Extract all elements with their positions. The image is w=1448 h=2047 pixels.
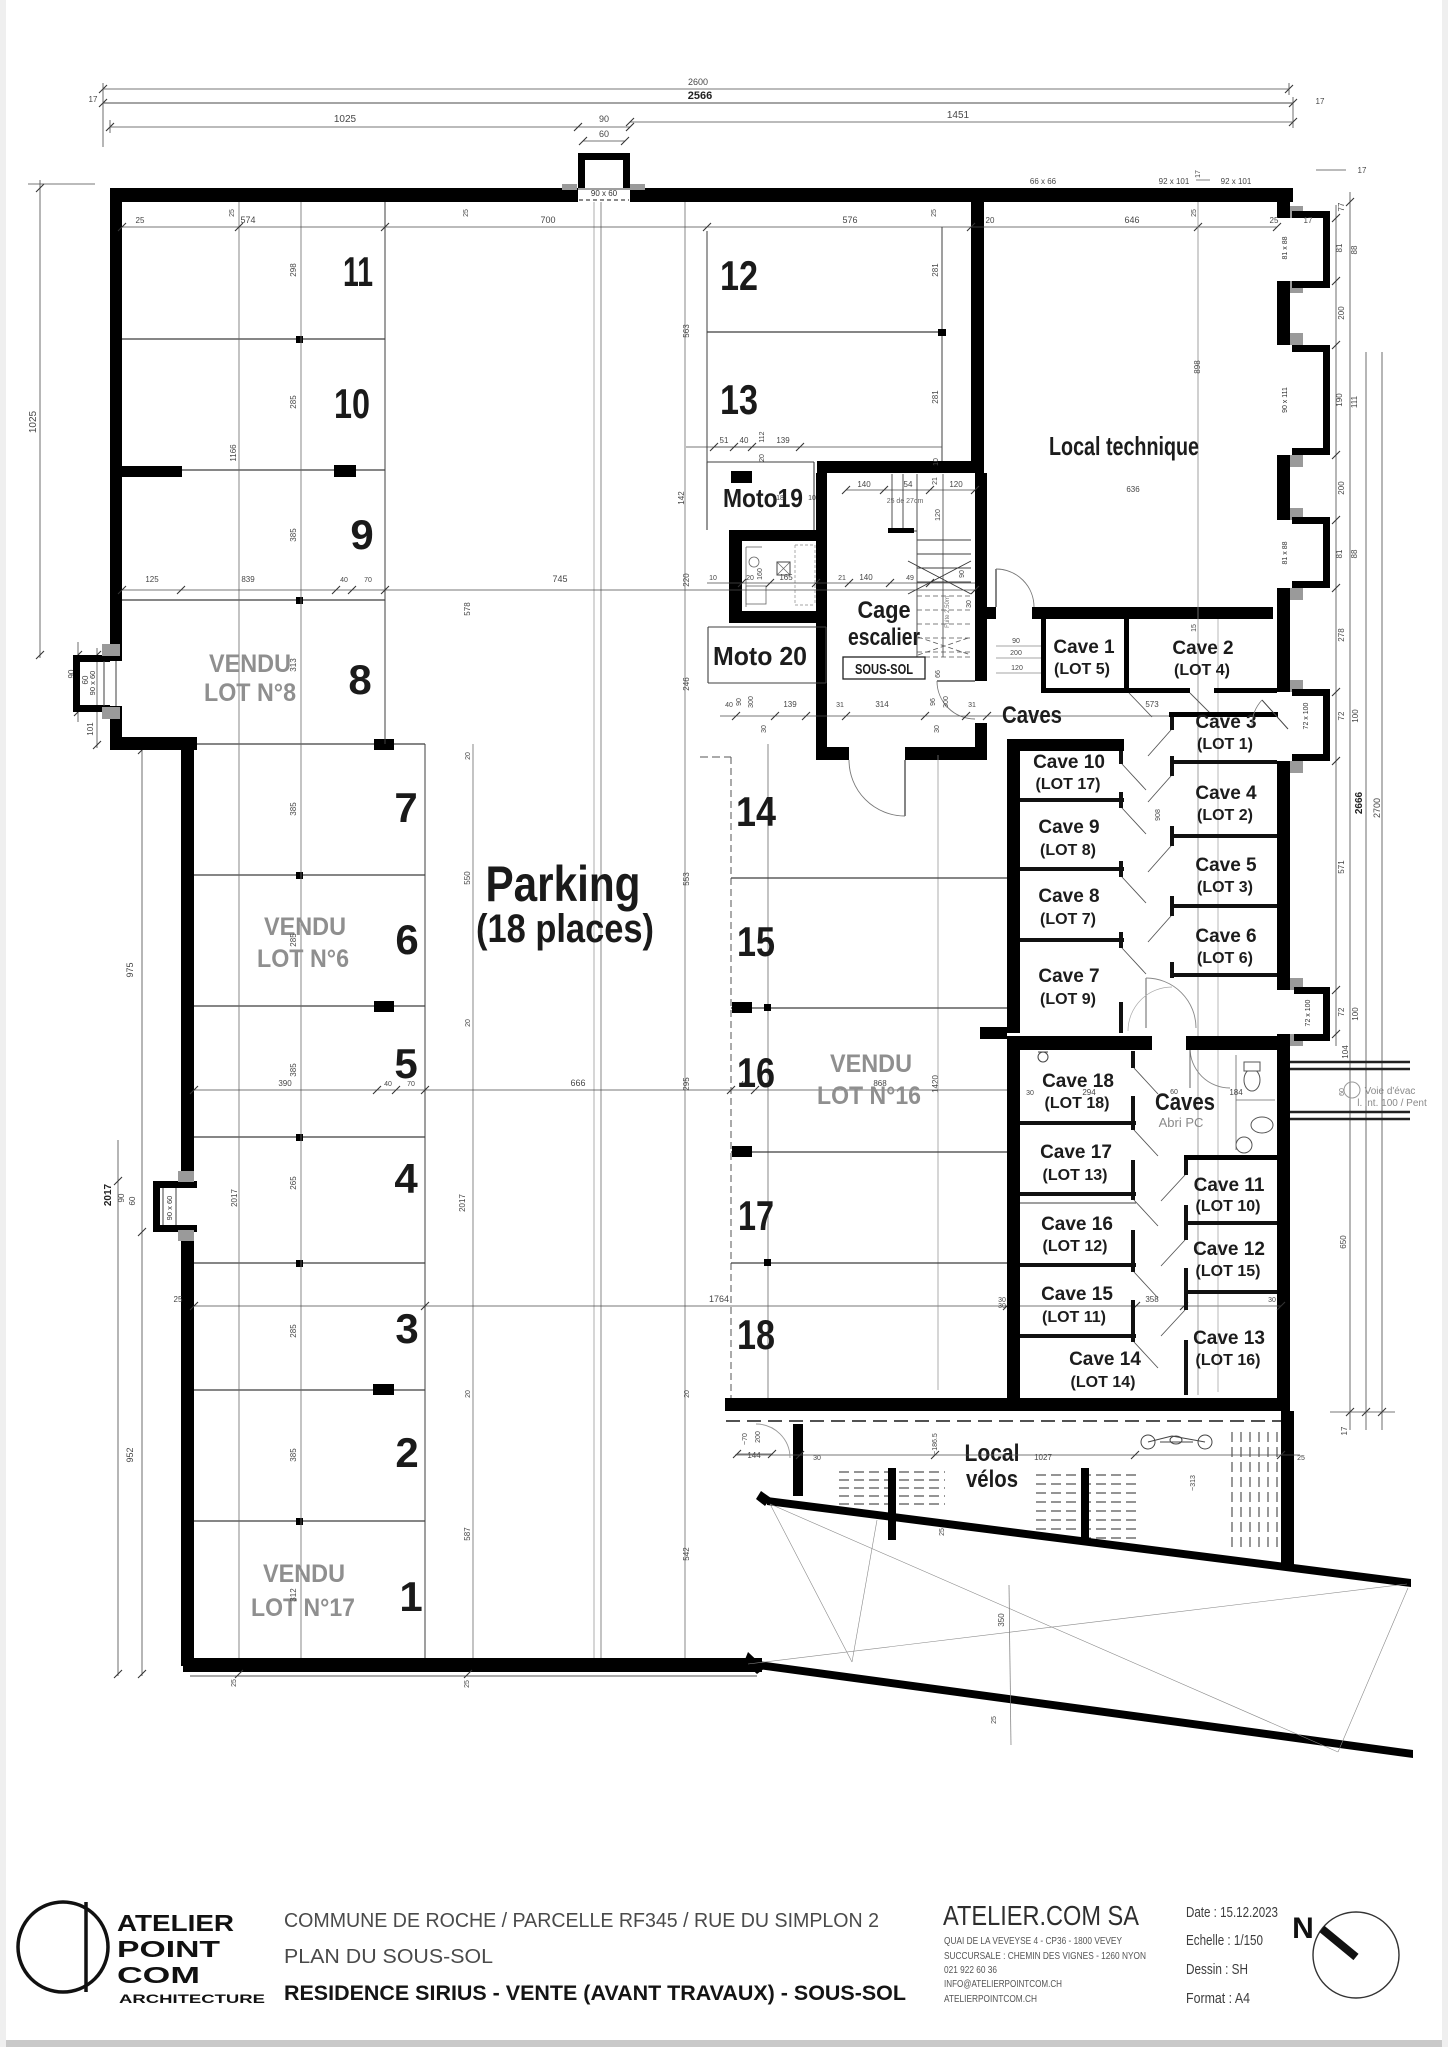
svg-text:70: 70 [364,577,372,584]
svg-text:120: 120 [935,509,942,521]
svg-text:17: 17 [1358,166,1367,175]
svg-text:(LOT 3): (LOT 3) [1197,879,1253,896]
svg-text:25: 25 [991,1716,998,1724]
svg-text:VENDU: VENDU [209,650,291,678]
svg-text:10: 10 [709,575,717,582]
svg-text:30: 30 [1268,1297,1276,1304]
svg-text:10: 10 [933,458,940,466]
svg-text:72: 72 [1337,711,1346,720]
svg-text:30: 30 [934,725,941,733]
svg-text:40: 40 [740,436,749,445]
svg-text:285: 285 [289,1324,298,1338]
svg-text:142: 142 [677,491,686,505]
svg-text:17: 17 [1316,97,1325,106]
svg-text:(LOT 14): (LOT 14) [1071,1374,1136,1391]
svg-text:31: 31 [836,702,844,709]
svg-text:700: 700 [540,215,555,225]
svg-text:81 x 88: 81 x 88 [1282,541,1289,564]
svg-text:Cave 8: Cave 8 [1038,886,1099,907]
svg-text:20: 20 [746,575,754,582]
svg-text:25: 25 [464,1680,471,1688]
svg-text:(LOT 5): (LOT 5) [1054,661,1110,678]
svg-text:66: 66 [935,670,942,678]
svg-text:120: 120 [1011,665,1023,672]
svg-text:(LOT 1): (LOT 1) [1197,736,1253,753]
svg-text:N: N [1292,1912,1314,1945]
svg-text:101: 101 [86,722,95,736]
svg-text:576: 576 [842,215,857,225]
svg-text:21: 21 [932,477,939,485]
svg-text:51: 51 [720,436,729,445]
svg-text:390: 390 [278,1079,292,1088]
svg-text:200: 200 [1337,481,1346,495]
svg-text:60: 60 [1339,1088,1346,1096]
svg-text:Cage: Cage [858,597,911,624]
svg-text:281: 281 [931,390,940,404]
svg-text:144: 144 [747,1451,761,1460]
svg-text:(LOT 15): (LOT 15) [1196,1263,1261,1280]
svg-text:Cave 10: Cave 10 [1033,752,1105,773]
svg-text:294: 294 [1082,1088,1096,1097]
svg-text:385: 385 [289,802,298,816]
svg-text:90 x 60: 90 x 60 [88,671,97,696]
svg-text:120: 120 [949,480,963,489]
svg-text:952: 952 [125,1447,135,1462]
svg-text:LOT N°8: LOT N°8 [204,679,296,707]
svg-text:72 x 100: 72 x 100 [1305,999,1312,1026]
svg-text:11: 11 [343,248,373,295]
svg-text:~70: ~70 [742,1433,749,1445]
svg-text:1027: 1027 [1034,1453,1052,1462]
svg-text:5: 5 [394,1040,417,1087]
svg-text:17: 17 [738,1192,774,1239]
svg-text:(LOT 12): (LOT 12) [1043,1238,1108,1255]
svg-text:Cave 12: Cave 12 [1193,1239,1265,1260]
svg-text:54: 54 [904,480,913,489]
svg-text:Cave 5: Cave 5 [1195,855,1257,876]
svg-text:1: 1 [399,1573,422,1620]
svg-text:(LOT 4): (LOT 4) [1174,662,1230,679]
svg-text:385: 385 [289,1448,298,1462]
svg-text:90: 90 [1012,638,1020,645]
svg-text:81 x 88: 81 x 88 [1282,236,1289,259]
svg-text:Caves: Caves [1002,702,1062,729]
svg-text:(LOT 9): (LOT 9) [1040,991,1096,1008]
svg-text:40: 40 [340,577,348,584]
svg-text:300: 300 [748,696,755,708]
svg-text:25: 25 [229,209,236,217]
svg-text:PLAN DU SOUS-SOL: PLAN DU SOUS-SOL [284,1946,493,1968]
svg-text:Voie d'évac: Voie d'évac [1365,1086,1416,1097]
svg-text:839: 839 [241,575,255,584]
svg-text:17: 17 [1195,170,1202,178]
svg-text:1166: 1166 [229,444,238,462]
svg-text:298: 298 [289,263,298,277]
svg-text:Moto19: Moto19 [723,483,803,513]
svg-text:VENDU: VENDU [264,913,346,941]
svg-text:(18 places): (18 places) [476,907,654,951]
svg-text:17: 17 [1304,216,1313,225]
svg-text:25: 25 [931,209,938,217]
svg-text:553: 553 [682,872,691,886]
svg-text:LOT N°17: LOT N°17 [251,1594,355,1622]
svg-text:2566: 2566 [688,90,712,102]
svg-text:975: 975 [125,962,135,977]
svg-text:Cave 15: Cave 15 [1041,1284,1113,1305]
svg-text:(LOT 17): (LOT 17) [1036,776,1101,793]
svg-text:ATELIERPOINTCOM.CH: ATELIERPOINTCOM.CH [944,1993,1037,2005]
svg-text:111: 111 [1350,395,1359,408]
svg-text:200: 200 [1337,306,1346,320]
svg-text:18: 18 [776,495,784,502]
svg-text:1764: 1764 [709,1294,729,1304]
svg-text:72: 72 [1337,1007,1346,1016]
svg-text:96: 96 [930,698,937,706]
svg-text:QUAI DE LA VEVEYSE 4 - CP36 -: QUAI DE LA VEVEYSE 4 - CP36 - 1800 VEVEY [944,1935,1122,1947]
svg-text:90: 90 [117,1193,126,1202]
svg-text:313: 313 [289,658,298,672]
svg-text:666: 666 [570,1078,585,1088]
svg-text:13: 13 [720,376,758,423]
svg-text:140: 140 [859,573,873,582]
svg-text:2017: 2017 [230,1189,239,1207]
svg-text:(LOT 13): (LOT 13) [1043,1167,1108,1184]
svg-text:7: 7 [394,784,417,831]
svg-text:88: 88 [1350,549,1359,558]
svg-text:2700: 2700 [1372,798,1382,818]
svg-text:745: 745 [552,574,567,584]
svg-text:184: 184 [1229,1088,1243,1097]
svg-text:ATELIER: ATELIER [117,1910,234,1936]
svg-text:20: 20 [759,454,766,462]
svg-text:246: 246 [682,677,691,691]
svg-text:Cave 2: Cave 2 [1172,638,1233,659]
svg-text:Cave 18: Cave 18 [1042,1071,1114,1092]
svg-text:Fuite 2.50m: Fuite 2.50m [945,596,951,628]
svg-text:165: 165 [779,573,793,582]
svg-text:1451: 1451 [947,110,970,121]
svg-text:90 x 60: 90 x 60 [591,189,618,198]
svg-text:(LOT 18): (LOT 18) [1045,1095,1110,1112]
svg-text:385: 385 [289,528,298,542]
svg-text:908: 908 [1155,809,1162,821]
svg-text:16: 16 [737,1049,775,1096]
svg-text:~313: ~313 [1190,1475,1197,1491]
svg-text:Caves: Caves [1155,1089,1215,1116]
svg-text:ATELIER.COM SA: ATELIER.COM SA [943,1900,1139,1931]
svg-text:3: 3 [395,1305,418,1352]
svg-text:Dessin : SH: Dessin : SH [1186,1961,1248,1978]
svg-text:Format : A4: Format : A4 [1186,1990,1250,2007]
svg-text:60: 60 [599,129,609,139]
svg-text:563: 563 [682,324,691,338]
svg-text:140: 140 [857,480,871,489]
svg-text:(LOT 7): (LOT 7) [1040,911,1096,928]
svg-text:4: 4 [394,1155,418,1202]
svg-text:30: 30 [761,725,768,733]
svg-text:18: 18 [737,1311,775,1358]
svg-text:25: 25 [939,1528,946,1536]
svg-text:350: 350 [997,1613,1006,1627]
svg-text:2600: 2600 [688,77,708,87]
svg-text:2: 2 [395,1429,418,1476]
svg-text:15: 15 [737,918,775,965]
svg-text:17: 17 [1340,1426,1349,1435]
svg-text:Cave 17: Cave 17 [1040,1142,1112,1163]
svg-text:20: 20 [465,1390,472,1398]
svg-text:300: 300 [943,696,950,708]
svg-text:VENDU: VENDU [830,1050,912,1078]
svg-text:90 x 60: 90 x 60 [165,1196,174,1221]
svg-text:40: 40 [384,1081,392,1088]
svg-text:15: 15 [1191,624,1198,632]
svg-text:Cave 14: Cave 14 [1069,1349,1141,1370]
svg-text:Moto 20: Moto 20 [713,641,807,671]
svg-text:285: 285 [289,933,298,947]
svg-text:90: 90 [959,570,966,578]
svg-text:8: 8 [348,656,371,703]
svg-text:72 x 100: 72 x 100 [1303,702,1310,729]
svg-text:vélos: vélos [966,1466,1018,1493]
svg-text:200: 200 [1010,650,1022,657]
svg-text:25: 25 [136,216,145,225]
svg-text:104: 104 [1341,1045,1350,1059]
svg-text:2017: 2017 [103,1183,114,1206]
svg-text:COM: COM [117,1962,200,1988]
svg-text:6: 6 [395,916,418,963]
svg-text:LOT N°16: LOT N°16 [817,1082,921,1110]
svg-text:88: 88 [1350,245,1359,254]
svg-text:ARCHITECTURE: ARCHITECTURE [119,1994,266,2006]
svg-text:20: 20 [986,216,995,225]
svg-text:(LOT 6): (LOT 6) [1197,950,1253,967]
svg-text:92 x 101: 92 x 101 [1221,177,1252,186]
svg-text:200: 200 [755,1431,762,1443]
svg-text:646: 646 [1124,215,1139,225]
svg-text:90 x 111: 90 x 111 [1282,387,1289,413]
svg-text:Cave 16: Cave 16 [1041,1214,1113,1235]
svg-text:278: 278 [1337,628,1346,642]
svg-text:112: 112 [759,431,766,442]
svg-text:30: 30 [1026,1090,1034,1097]
svg-text:125: 125 [145,575,159,584]
svg-text:VENDU: VENDU [263,1560,345,1588]
svg-text:POINT: POINT [117,1936,220,1962]
svg-text:92 x 101: 92 x 101 [1159,177,1190,186]
svg-text:SUCCURSALE : CHEMIN DES VIGNES: SUCCURSALE : CHEMIN DES VIGNES - 1260 NY… [944,1950,1146,1962]
svg-text:550: 550 [463,871,472,885]
svg-text:265: 265 [289,1176,298,1190]
svg-text:285: 285 [289,395,298,409]
svg-text:220: 220 [682,573,691,587]
svg-text:Parking: Parking [486,856,641,912]
svg-text:9: 9 [350,511,373,558]
svg-text:Cave 4: Cave 4 [1195,783,1257,804]
svg-text:l. int. 100 / Pent: l. int. 100 / Pent [1357,1098,1427,1109]
svg-text:(LOT 11): (LOT 11) [1042,1309,1106,1326]
svg-text:20: 20 [684,1390,691,1398]
svg-text:81: 81 [1335,243,1344,252]
svg-text:25: 25 [1270,216,1279,225]
svg-text:60: 60 [128,1196,137,1205]
svg-text:66 x 66: 66 x 66 [1030,177,1057,186]
svg-text:(LOT 10): (LOT 10) [1196,1198,1261,1215]
svg-text:20: 20 [465,752,472,760]
svg-text:escalier: escalier [848,624,920,651]
svg-text:17: 17 [89,95,98,104]
svg-text:21: 21 [838,575,846,582]
svg-text:573: 573 [1145,700,1159,709]
svg-text:LOT N°6: LOT N°6 [257,945,349,973]
svg-text:25: 25 [463,209,470,217]
svg-text:2017: 2017 [458,1194,467,1212]
svg-text:(LOT 8): (LOT 8) [1040,842,1096,859]
svg-text:30: 30 [966,600,973,608]
svg-text:Abri PC: Abri PC [1159,1115,1204,1130]
svg-text:Cave 9: Cave 9 [1038,817,1099,838]
svg-text:Cave 6: Cave 6 [1195,926,1256,947]
svg-text:25: 25 [1191,209,1198,217]
svg-text:Cave 7: Cave 7 [1038,966,1099,987]
svg-text:30: 30 [998,1303,1006,1310]
svg-text:(LOT 2): (LOT 2) [1197,807,1253,824]
svg-text:281: 281 [931,263,940,277]
svg-text:70: 70 [407,1081,415,1088]
svg-text:30: 30 [813,1455,821,1462]
svg-text:Cave 13: Cave 13 [1193,1328,1265,1349]
svg-text:COMMUNE DE ROCHE / PARCELLE RF: COMMUNE DE ROCHE / PARCELLE RF345 / RUE … [284,1910,879,1932]
svg-text:636: 636 [1126,485,1140,494]
svg-text:90: 90 [599,114,609,124]
svg-text:20: 20 [465,1019,472,1027]
svg-text:(LOT 16): (LOT 16) [1196,1352,1261,1369]
svg-text:INFO@ATELIERPOINTCOM.CH: INFO@ATELIERPOINTCOM.CH [944,1978,1062,1990]
svg-text:Cave 11: Cave 11 [1194,1175,1265,1196]
svg-text:571: 571 [1337,860,1346,874]
svg-text:10: 10 [808,495,816,502]
svg-text:~186.5: ~186.5 [932,1433,939,1455]
svg-text:358: 358 [1145,1295,1159,1304]
svg-text:10: 10 [334,380,370,427]
svg-text:Date : 15.12.2023: Date : 15.12.2023 [1186,1904,1278,1921]
svg-text:Local technique: Local technique [1049,431,1199,461]
svg-text:139: 139 [776,436,790,445]
svg-text:1420: 1420 [931,1075,940,1093]
svg-text:295: 295 [682,1077,691,1091]
svg-text:1025: 1025 [28,410,39,433]
svg-text:312: 312 [289,1588,298,1602]
svg-text:160: 160 [757,568,764,580]
svg-text:898: 898 [1193,360,1202,374]
svg-text:Local: Local [965,1440,1020,1467]
svg-text:SOUS-SOL: SOUS-SOL [855,661,913,678]
svg-text:139: 139 [783,700,797,709]
svg-text:77: 77 [1337,202,1346,211]
svg-text:587: 587 [463,1527,472,1541]
svg-text:Cave 1: Cave 1 [1053,637,1115,658]
svg-text:40: 40 [725,702,733,709]
svg-text:650: 650 [1339,1235,1348,1249]
svg-text:100: 100 [1351,1007,1360,1021]
svg-text:12: 12 [720,252,758,299]
svg-text:578: 578 [463,602,472,616]
svg-text:90: 90 [736,698,743,706]
svg-text:Cave 3: Cave 3 [1195,712,1256,733]
svg-text:25 de 27cm: 25 de 27cm [887,498,924,505]
svg-text:190: 190 [1335,393,1344,407]
svg-text:385: 385 [289,1063,298,1077]
svg-text:25: 25 [1297,1455,1305,1462]
svg-text:60: 60 [1170,1089,1178,1096]
svg-text:Echelle : 1/150: Echelle : 1/150 [1186,1932,1263,1949]
svg-text:021 922 60 36: 021 922 60 36 [944,1964,997,1976]
svg-text:100: 100 [1351,709,1360,723]
svg-text:2666: 2666 [1354,791,1365,814]
svg-text:RESIDENCE SIRIUS - VENTE (AVAN: RESIDENCE SIRIUS - VENTE (AVANT TRAVAUX)… [284,1982,906,2005]
svg-text:81: 81 [1335,549,1344,558]
svg-text:314: 314 [875,700,889,709]
svg-text:31: 31 [968,702,976,709]
svg-text:14: 14 [736,788,777,835]
svg-text:49: 49 [906,575,914,582]
svg-text:1025: 1025 [334,114,357,125]
svg-text:25: 25 [174,1295,183,1304]
svg-text:25: 25 [231,1679,238,1687]
svg-text:542: 542 [682,1547,691,1561]
